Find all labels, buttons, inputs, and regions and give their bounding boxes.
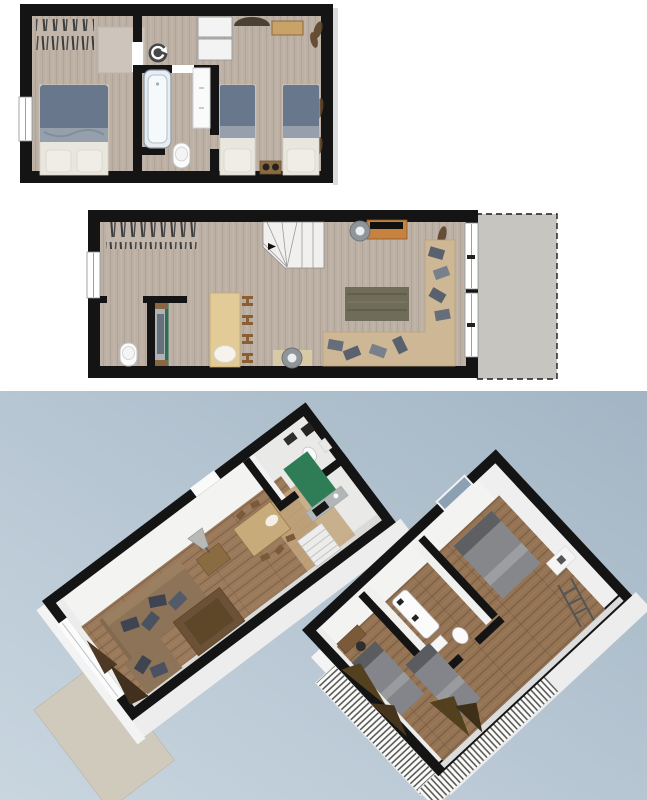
wall-stub [133,16,142,42]
floor-lamp-bottom [282,348,302,368]
ground-floor-plan [87,210,557,379]
striped-rug [36,19,94,50]
floor-lamp-top [350,221,370,241]
plan-shadow [333,8,338,185]
tv [370,222,403,229]
rotate-marker-icon [149,44,168,63]
bar-table [210,293,240,367]
window [19,97,32,141]
upper-floor-plan [19,4,338,185]
tv-sideboard [367,220,407,239]
wardrobe-units [198,17,232,60]
floorplan-canvas [0,0,647,800]
toilet [173,143,190,168]
white-oval-decor [214,346,236,363]
window [87,252,100,298]
single-bed-left [220,85,255,175]
bathroom-closet [193,68,210,128]
kitchen-unit [155,303,169,366]
wc-toilet [120,343,137,366]
terrace-dashed [476,214,557,379]
double-bed [40,85,108,175]
nightstand [260,161,281,174]
desk [272,21,303,35]
dark-area-rug [345,287,409,321]
bathtub [144,70,171,148]
single-bed-right [283,85,319,175]
scene-svg [0,0,647,800]
striped-rug [106,222,198,249]
